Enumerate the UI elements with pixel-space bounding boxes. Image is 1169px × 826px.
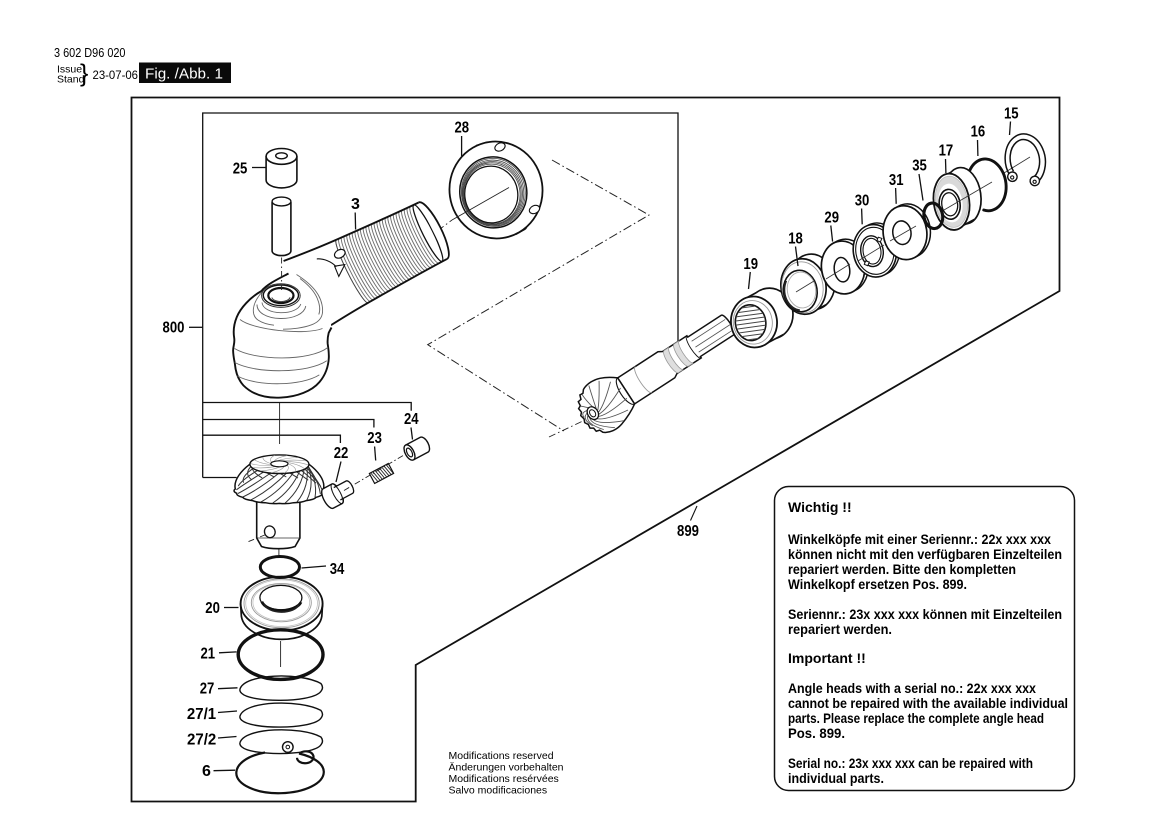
svg-text:Modifications resérvées: Modifications resérvées xyxy=(449,773,559,785)
svg-text:800: 800 xyxy=(163,320,185,337)
svg-text:Important !!: Important !! xyxy=(788,650,866,666)
svg-text:3: 3 xyxy=(351,196,360,213)
svg-text:28: 28 xyxy=(455,120,470,137)
svg-text:Seriennr.: 23x xxx xxx können: Seriennr.: 23x xxx xxx können mit Einzel… xyxy=(788,606,1062,622)
svg-text:repariert werden. Bitte den ko: repariert werden. Bitte den kompletten xyxy=(788,561,1016,577)
svg-text:23-07-06: 23-07-06 xyxy=(93,68,139,82)
svg-text:}: } xyxy=(80,60,88,88)
svg-text:Modifications reserved: Modifications reserved xyxy=(449,750,554,762)
svg-text:22: 22 xyxy=(334,445,349,462)
svg-text:Serial no.: 23x xxx xxx can be: Serial no.: 23x xxx xxx can be repaired … xyxy=(788,755,1033,771)
svg-text:Salvo modificaciones: Salvo modificaciones xyxy=(449,785,548,797)
svg-text:24: 24 xyxy=(404,411,419,428)
svg-text:parts. Please replace the comp: parts. Please replace the complete angle… xyxy=(788,710,1044,726)
svg-text:18: 18 xyxy=(788,231,803,248)
svg-text:31: 31 xyxy=(889,172,904,189)
svg-text:27/2: 27/2 xyxy=(187,732,216,749)
svg-text:23: 23 xyxy=(367,430,382,447)
svg-text:21: 21 xyxy=(201,646,216,663)
svg-text:15: 15 xyxy=(1004,106,1019,123)
svg-text:Pos. 899.: Pos. 899. xyxy=(788,725,845,741)
svg-text:Änderungen vorbehalten: Änderungen vorbehalten xyxy=(449,762,564,774)
svg-text:17: 17 xyxy=(939,143,954,160)
svg-text:27: 27 xyxy=(200,681,215,698)
svg-text:Fig. /Abb. 1: Fig. /Abb. 1 xyxy=(145,66,223,83)
svg-text:20: 20 xyxy=(205,600,220,617)
svg-text:Winkelkopf ersetzen Pos. 899.: Winkelkopf ersetzen Pos. 899. xyxy=(788,576,967,592)
svg-text:29: 29 xyxy=(824,210,839,227)
svg-text:repariert werden.: repariert werden. xyxy=(788,621,892,637)
svg-text:6: 6 xyxy=(202,763,211,780)
svg-text:16: 16 xyxy=(971,124,986,141)
svg-text:individual parts.: individual parts. xyxy=(788,770,884,786)
svg-text:cannot be repaired with the av: cannot be repaired with the available in… xyxy=(788,695,1068,711)
svg-text:899: 899 xyxy=(677,523,699,540)
svg-text:27/1: 27/1 xyxy=(187,706,216,723)
svg-text:3 602 D96 020: 3 602 D96 020 xyxy=(54,46,126,60)
svg-text:19: 19 xyxy=(743,256,758,273)
svg-text:34: 34 xyxy=(330,561,345,578)
svg-text:35: 35 xyxy=(912,158,927,175)
svg-text:Winkelköpfe mit einer Seriennr: Winkelköpfe mit einer Seriennr.: 22x xxx… xyxy=(788,531,1051,547)
svg-text:Wichtig !!: Wichtig !! xyxy=(788,499,852,515)
svg-text:30: 30 xyxy=(855,193,870,210)
svg-text:können nicht mit den verfügbar: können nicht mit den verfügbaren Einzelt… xyxy=(788,546,1062,562)
svg-text:Angle heads with a serial no.:: Angle heads with a serial no.: 22x xxx x… xyxy=(788,680,1036,696)
svg-text:25: 25 xyxy=(233,161,248,178)
